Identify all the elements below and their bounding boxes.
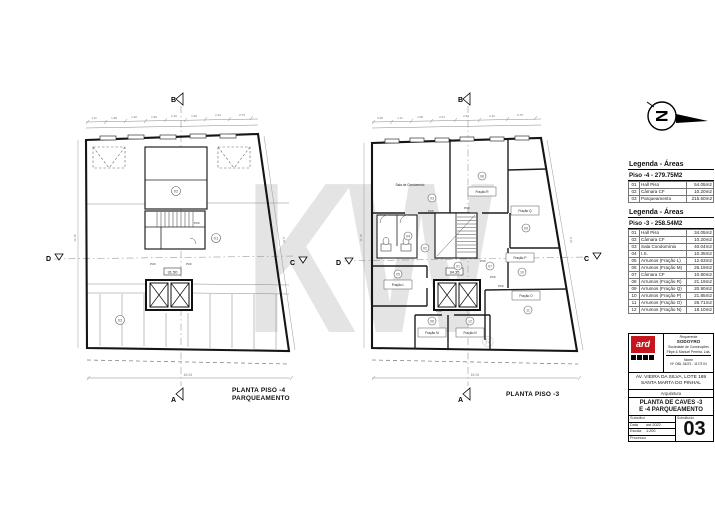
legend-piso-4-table: 01Hall Piso54.05m202Câmara CF10.20m203Pa…: [628, 181, 714, 203]
legend-row-area: 26.71m2: [687, 300, 714, 307]
svg-text:PCF: PCF: [428, 209, 434, 213]
legend-header: Legenda - Áreas: [628, 160, 714, 170]
svg-text:1.98: 1.98: [111, 116, 117, 120]
legend-row-name: Arrumos (Fração N): [640, 307, 687, 314]
legend-row-area: 21.19m2: [687, 279, 714, 286]
svg-text:2.22: 2.22: [489, 114, 495, 118]
legend-row-name: Hall Piso: [640, 182, 687, 189]
legend-row-number: 03: [629, 244, 640, 251]
legend-piso-3: Legenda - Áreas Piso -3 - 258.54M2 01Hal…: [628, 208, 714, 314]
svg-text:02: 02: [423, 246, 427, 250]
legend-row-number: 05: [629, 258, 640, 265]
legend-row: 01Hall Piso54.05m2: [629, 182, 714, 189]
floor-plan-piso-3: 0.99 1.11 1.98 2.01 2.81 2.22 0.75 11.15…: [330, 88, 620, 410]
svg-text:02: 02: [174, 189, 179, 194]
legend-row-name: Parqueamento: [640, 196, 687, 203]
legend-row: 01Hall Piso34.05m2: [629, 230, 714, 237]
legend-row: 10Arrumos (Fração P)21.85m2: [629, 293, 714, 300]
legend-row: 12Arrumos (Fração N)18.10m2: [629, 307, 714, 314]
dimension-text-right: 9.10: [282, 237, 287, 244]
svg-text:PCF: PCF: [436, 309, 442, 313]
legend-row-area: 215.50m2: [687, 196, 714, 203]
legend-row: 11Arrumos (Fração O)26.71m2: [629, 300, 714, 307]
svg-text:B: B: [458, 97, 463, 104]
dimension-text-top: 0.99 1.11 1.98 2.01 2.81 2.22 0.75: [377, 113, 523, 120]
dimension-text-bottom: 16.91: [471, 373, 480, 377]
svg-text:2.16: 2.16: [171, 114, 177, 118]
legend-row-name: Arrumos (Fração L): [640, 258, 687, 265]
svg-text:Fração P: Fração P: [514, 256, 527, 260]
property-line-bottom: [87, 360, 293, 380]
svg-text:PCF: PCF: [480, 259, 486, 263]
elevator-shaft: [434, 280, 480, 310]
legend-subheader: Piso -3 - 258.54M2: [628, 218, 714, 229]
svg-text:C: C: [584, 256, 589, 263]
legend-row-name: Arrumos (Fração R): [640, 279, 687, 286]
svg-text:12: 12: [468, 319, 472, 323]
legend-row-area: 21.85m2: [687, 293, 714, 300]
legend-row-area: 12.63m2: [687, 258, 714, 265]
dimension-text-top: 1.11 1.98 1.30 1.90 2.16 1.60 2.22 0.75: [91, 113, 245, 120]
data-label: Data: [630, 423, 646, 429]
legend-row-name: Arrumos (Fração M): [640, 265, 687, 272]
title-block: ard Requerente SODOYRO Sociedade de Cons…: [628, 333, 714, 442]
legend-row-number: 04: [629, 251, 640, 258]
project-address: AV. VIEIRA DA SILVA, LOTE 169 SANTA MART…: [629, 373, 713, 390]
legend-row-area: 54.05m2: [687, 182, 714, 189]
field-rows: Substitui Data out 2022 Escala 1:200 Pro…: [629, 416, 676, 441]
svg-text:1.90: 1.90: [151, 115, 157, 119]
svg-text:0.99: 0.99: [377, 116, 383, 120]
plan-caption-piso-4: PLANTA PISO -4 PARQUEAMENTO: [232, 387, 290, 402]
legend-piso-4: Legenda - Áreas Piso -4 - 279.75M2 01Hal…: [628, 160, 714, 203]
legend-row-name: Hall Piso: [640, 230, 687, 237]
legend-row-area: 26.19m2: [687, 265, 714, 272]
process-ref: Nº OBL 34/23 - 117/3 IN: [666, 362, 711, 366]
stair-core: [435, 213, 477, 258]
legend-row-number: 09: [629, 286, 640, 293]
svg-text:A: A: [458, 397, 463, 404]
svg-text:0.75: 0.75: [239, 113, 245, 117]
svg-text:1.11: 1.11: [91, 116, 97, 120]
sheet-number-cell: Substituído 03: [676, 416, 713, 441]
svg-text:Fração L: Fração L: [392, 283, 405, 287]
svg-text:08: 08: [480, 174, 484, 178]
svg-text:03: 03: [430, 196, 434, 200]
svg-text:05: 05: [396, 272, 400, 276]
svg-text:09: 09: [524, 226, 528, 230]
svg-text:B: B: [171, 97, 176, 104]
legend-row-number: 10: [629, 293, 640, 300]
escala-value: 1:200: [646, 429, 656, 435]
svg-text:Fração M: Fração M: [425, 331, 439, 335]
ard-logo: ard: [631, 336, 655, 353]
svg-text:1.60: 1.60: [191, 114, 197, 118]
svg-text:0.75: 0.75: [517, 113, 523, 117]
svg-text:D: D: [336, 260, 341, 267]
legend-row-area: 10.35m2: [687, 251, 714, 258]
sheet-number: 03: [676, 420, 713, 438]
floor-plan-piso-4: 1.11 1.98 1.30 1.90 2.16 1.60 2.22 0.75 …: [40, 88, 330, 410]
svg-text:PCF: PCF: [150, 262, 156, 266]
escala-label: Escala: [630, 429, 646, 435]
svg-text:06: 06: [430, 319, 434, 323]
legend-row-number: 12: [629, 307, 640, 314]
legend-row-number: 06: [629, 265, 640, 272]
room-camara-cf: 02: [145, 147, 207, 209]
substitui-label: Substitui: [630, 416, 646, 422]
svg-text:PCF: PCF: [498, 284, 504, 288]
legend-row: 08Arrumos (Fração R)21.19m2: [629, 279, 714, 286]
svg-text:10: 10: [520, 270, 524, 274]
svg-text:2.22: 2.22: [215, 113, 221, 117]
client-line3: Filipe & Manuel Pereira, Lda.: [666, 350, 711, 354]
svg-text:1.11: 1.11: [397, 116, 403, 120]
client-line2: Sociedade de Construções: [666, 345, 711, 349]
specialty: Arquitetura: [629, 390, 713, 398]
legend-row-name: Câmara CF: [640, 189, 687, 196]
dimension-text-right: 9.10: [569, 237, 574, 244]
north-arrow-icon: N: [628, 90, 714, 142]
legend-row: 09Arrumos (Fração Q)20.90m2: [629, 286, 714, 293]
svg-text:PCF: PCF: [194, 221, 200, 225]
legend-row-number: 03: [629, 196, 640, 203]
svg-text:D: D: [46, 256, 51, 263]
svg-text:PCF: PCF: [490, 275, 496, 279]
legend-row-number: 11: [629, 300, 640, 307]
svg-text:PCF: PCF: [186, 262, 192, 266]
svg-text:2.81: 2.81: [463, 114, 469, 118]
client-info: Requerente SODOYRO Sociedade de Construç…: [664, 334, 713, 372]
legend-row-area: 10.20m2: [687, 189, 714, 196]
legend-row-name: Câmara CF: [640, 237, 687, 244]
svg-text:Fração N: Fração N: [463, 331, 477, 335]
svg-text:11: 11: [526, 308, 530, 312]
legend-row-name: Arrumos (Fração O): [640, 300, 687, 307]
drawing-title: PLANTA DE CAVES -3 E -4 PARQUEAMENTO: [629, 398, 713, 416]
dimension-text-bottom: 16.91: [184, 373, 193, 377]
svg-text:01: 01: [456, 264, 460, 268]
legend-row-number: 07: [629, 272, 640, 279]
logo-squares: [631, 355, 661, 360]
legend-row-area: 34.05m2: [687, 230, 714, 237]
legend-piso-3-table: 01Hall Piso34.05m202Câmara CF10.20m203Sa…: [628, 229, 714, 314]
svg-text:Fração Q: Fração Q: [518, 209, 532, 213]
svg-text:C: C: [290, 260, 295, 267]
company-logo: ard: [629, 334, 664, 372]
unit-number: 03: [118, 318, 123, 323]
legend-subheader: Piso -4 - 279.75M2: [628, 170, 714, 181]
legend-row-name: Câmara CF: [640, 272, 687, 279]
plan-caption-piso-3: PLANTA PISO -3: [506, 391, 559, 399]
svg-text:N: N: [653, 110, 672, 122]
legend-row-name: Arrumos (Fração Q): [640, 286, 687, 293]
svg-text:04: 04: [406, 234, 410, 238]
legend-row: 03Parqueamento215.50m2: [629, 196, 714, 203]
legend-header: Legenda - Áreas: [628, 208, 714, 218]
svg-text:1.30: 1.30: [131, 115, 137, 119]
legend-row-name: Arrumos (Fração P): [640, 293, 687, 300]
legend-row-area: 20.90m2: [687, 286, 714, 293]
svg-text:31.50: 31.50: [167, 269, 178, 274]
legend-row-area: 18.10m2: [687, 307, 714, 314]
legend-row: 06Arrumos (Fração M)26.19m2: [629, 265, 714, 272]
legend-row: 04I.S.10.35m2: [629, 251, 714, 258]
dimension-text-left: 11.15: [359, 234, 363, 242]
legend-row-number: 02: [629, 189, 640, 196]
legend-row-name: I.S.: [640, 251, 687, 258]
legend-row-area: 40.04m2: [687, 244, 714, 251]
drawing-sheet: { "watermark": {"text": "KW", "registere…: [0, 0, 715, 506]
svg-text:2.01: 2.01: [439, 115, 445, 119]
legend-row-name: Sala Condomínio: [640, 244, 687, 251]
svg-text:Fração R: Fração R: [475, 190, 489, 194]
legend-row-number: 02: [629, 237, 640, 244]
svg-text:Fração O: Fração O: [519, 294, 533, 298]
property-line-bottom: [372, 360, 581, 380]
legend-row: 07Câmara CF10.80m2: [629, 272, 714, 279]
legend-row: 05Arrumos (Fração L)12.63m2: [629, 258, 714, 265]
svg-text:07: 07: [488, 264, 492, 268]
legend-row-area: 10.20m2: [687, 237, 714, 244]
svg-text:1.98: 1.98: [417, 115, 423, 119]
legend-row: 02Câmara CF10.20m2: [629, 189, 714, 196]
legend-row-number: 08: [629, 279, 640, 286]
dimension-text-left: 11.15: [73, 234, 77, 242]
svg-text:Sala de Condomínio: Sala de Condomínio: [396, 183, 425, 187]
processo-label: Processo: [630, 436, 646, 442]
svg-text:PCF: PCF: [464, 206, 470, 210]
client-name: SODOYRO: [666, 340, 711, 344]
legend-row-number: 01: [629, 230, 640, 237]
legend-row: 02Câmara CF10.20m2: [629, 237, 714, 244]
legend-row: 03Sala Condomínio40.04m2: [629, 244, 714, 251]
svg-text:A: A: [171, 397, 176, 404]
elevator-shaft: [146, 280, 192, 310]
svg-text:01: 01: [214, 236, 219, 241]
legend-row-number: 01: [629, 182, 640, 189]
data-value: out 2022: [646, 423, 661, 429]
stair-core: PCF PCF PCF 31.50 01: [145, 211, 221, 275]
legend-row-area: 10.80m2: [687, 272, 714, 279]
